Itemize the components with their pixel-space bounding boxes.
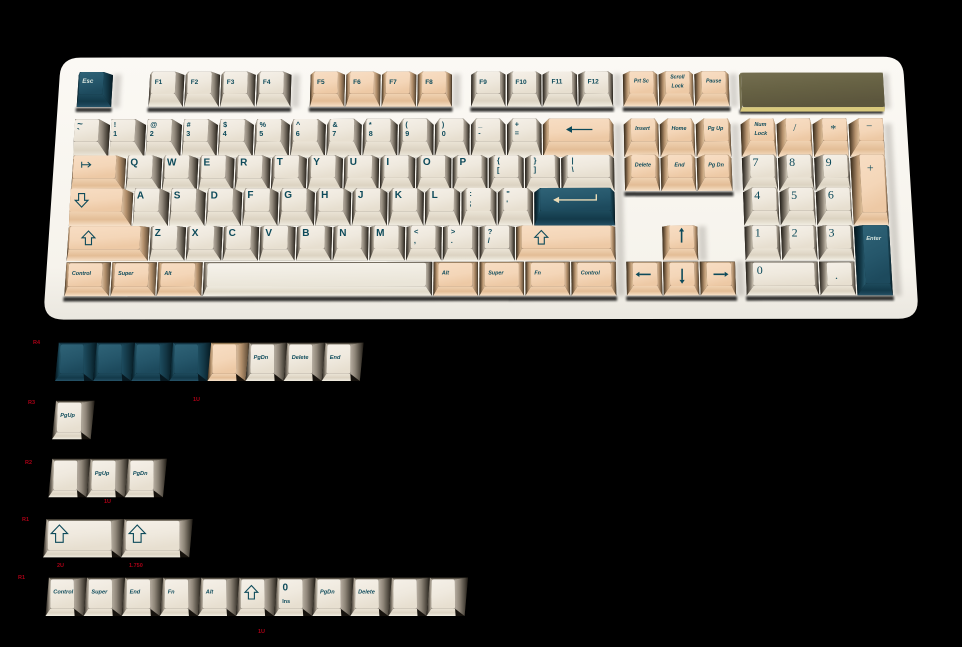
svg-text:M: M	[376, 228, 384, 239]
svg-text:2: 2	[792, 226, 798, 240]
svg-text:Delete: Delete	[358, 590, 375, 596]
svg-text:+: +	[515, 120, 519, 129]
svg-text:I: I	[386, 157, 389, 168]
svg-text:9: 9	[826, 155, 832, 169]
svg-text:1: 1	[113, 129, 117, 138]
svg-text:4: 4	[754, 188, 760, 202]
svg-text:3: 3	[186, 129, 190, 138]
svg-text:R1: R1	[18, 575, 25, 581]
svg-text:PgUp: PgUp	[60, 413, 75, 419]
svg-text:=: =	[515, 129, 519, 138]
svg-text:Control: Control	[72, 271, 92, 277]
svg-text:$: $	[223, 120, 227, 129]
svg-text:Pg Dn: Pg Dn	[708, 162, 724, 168]
svg-text:Lock: Lock	[672, 83, 685, 89]
svg-text:Fn: Fn	[168, 590, 175, 596]
svg-text:*: *	[369, 120, 372, 129]
svg-text:4: 4	[223, 129, 227, 138]
svg-text:Control: Control	[53, 590, 73, 596]
svg-text:U: U	[350, 157, 357, 168]
svg-text:": "	[506, 189, 510, 198]
svg-text:T: T	[277, 157, 283, 168]
svg-text:F10: F10	[515, 79, 527, 86]
svg-text:P: P	[460, 157, 467, 168]
svg-text:Insert: Insert	[635, 126, 650, 132]
svg-text:F: F	[247, 190, 253, 201]
svg-text:;: ;	[469, 198, 472, 207]
svg-text:Alt: Alt	[163, 271, 171, 277]
svg-text:J: J	[358, 190, 364, 201]
svg-text:.: .	[451, 236, 453, 245]
svg-text:3: 3	[829, 225, 835, 239]
svg-text:Prt Sc: Prt Sc	[634, 79, 649, 85]
svg-text:D: D	[211, 190, 218, 201]
svg-text:X: X	[192, 228, 199, 239]
svg-text:PgDn: PgDn	[254, 355, 269, 361]
svg-text:G: G	[284, 190, 292, 201]
svg-text:Super: Super	[91, 590, 108, 596]
svg-text:Esc: Esc	[82, 78, 94, 85]
svg-text:Pause: Pause	[706, 78, 721, 84]
svg-text:F8: F8	[425, 79, 433, 86]
svg-text:F1: F1	[155, 79, 163, 86]
svg-text:%: %	[260, 120, 267, 129]
svg-text:Super: Super	[118, 271, 134, 277]
svg-text:F12: F12	[588, 79, 600, 86]
svg-text::: :	[469, 189, 472, 198]
svg-text:Delete: Delete	[292, 355, 309, 361]
svg-text:!: !	[114, 120, 116, 129]
svg-text:L: L	[432, 190, 438, 201]
svg-text:Alt: Alt	[205, 590, 215, 596]
svg-text:6: 6	[296, 129, 300, 138]
svg-text:F7: F7	[389, 79, 397, 86]
svg-text:O: O	[423, 157, 431, 168]
svg-text:Alt: Alt	[441, 271, 449, 277]
svg-text:0: 0	[757, 263, 763, 277]
svg-text:1.750: 1.750	[129, 563, 143, 569]
svg-text:W: W	[167, 157, 177, 168]
svg-text:2: 2	[150, 129, 154, 138]
svg-text:|: |	[572, 156, 574, 165]
svg-text:Control: Control	[581, 270, 601, 276]
svg-text:}: }	[534, 156, 537, 165]
svg-text:@: @	[150, 120, 157, 129]
svg-text:Z: Z	[155, 228, 161, 239]
svg-text:F2: F2	[191, 79, 199, 86]
svg-text:K: K	[395, 190, 403, 201]
svg-text:*: *	[830, 122, 836, 136]
svg-text:PgDn: PgDn	[320, 590, 335, 596]
svg-text:V: V	[265, 228, 272, 239]
svg-text:7: 7	[753, 155, 759, 169]
svg-text:0: 0	[283, 583, 289, 594]
svg-text:Q: Q	[130, 157, 138, 168]
svg-text:H: H	[321, 190, 328, 201]
svg-text:F9: F9	[479, 79, 487, 86]
svg-text:R4: R4	[33, 340, 41, 346]
svg-text:End: End	[130, 590, 141, 596]
svg-text:Super: Super	[488, 271, 504, 277]
svg-text:N: N	[339, 228, 346, 239]
svg-text:1U: 1U	[258, 629, 265, 635]
svg-text:F11: F11	[552, 79, 563, 86]
svg-text:R2: R2	[25, 460, 32, 466]
svg-text:2U: 2U	[57, 563, 64, 569]
svg-text:Pg Up: Pg Up	[708, 126, 724, 132]
svg-text:1U: 1U	[104, 499, 111, 505]
svg-text:#: #	[187, 120, 191, 129]
svg-text:': '	[506, 198, 508, 207]
svg-text:1U: 1U	[193, 397, 200, 403]
svg-text:?: ?	[488, 227, 493, 236]
svg-text:<: <	[414, 227, 419, 236]
svg-text:0: 0	[442, 129, 446, 138]
svg-text:PgUp: PgUp	[95, 471, 110, 477]
svg-text:9: 9	[405, 129, 409, 138]
svg-text:.: .	[835, 268, 838, 282]
svg-text:F4: F4	[263, 79, 271, 86]
svg-text:5: 5	[259, 129, 263, 138]
svg-text:C: C	[229, 228, 236, 239]
svg-text:{: {	[497, 156, 500, 165]
svg-text:7: 7	[332, 129, 336, 138]
svg-text:1: 1	[755, 226, 761, 240]
svg-text:R3: R3	[28, 400, 35, 406]
svg-text:Fn: Fn	[534, 271, 541, 277]
svg-text:6: 6	[828, 188, 834, 202]
svg-text:Delete: Delete	[635, 162, 651, 168]
svg-text:>: >	[451, 227, 456, 236]
svg-text:S: S	[174, 190, 181, 201]
svg-text:8: 8	[369, 129, 373, 138]
svg-text:End: End	[674, 162, 685, 168]
svg-text:5: 5	[791, 188, 797, 202]
svg-text:E: E	[204, 157, 211, 168]
svg-text:Num: Num	[754, 122, 766, 128]
svg-text:Ins: Ins	[282, 599, 290, 605]
svg-text:Lock: Lock	[755, 131, 769, 137]
svg-text:F3: F3	[227, 79, 235, 86]
svg-text:R1: R1	[22, 517, 29, 523]
svg-text:−: −	[866, 120, 872, 132]
svg-text:PgDn: PgDn	[133, 471, 148, 477]
svg-text:`: `	[77, 127, 80, 138]
svg-text:&: &	[333, 120, 338, 129]
svg-text:,: ,	[414, 236, 416, 245]
svg-text:R: R	[240, 157, 248, 168]
svg-text:A: A	[137, 190, 144, 201]
svg-text:Enter: Enter	[866, 236, 882, 242]
svg-text:Scroll: Scroll	[670, 75, 685, 81]
svg-text:F6: F6	[353, 79, 361, 86]
svg-text:+: +	[867, 161, 874, 175]
svg-text:Home: Home	[672, 126, 687, 132]
svg-text:F5: F5	[317, 79, 325, 86]
svg-text:8: 8	[789, 155, 795, 169]
svg-text:Y: Y	[313, 157, 320, 168]
svg-text:End: End	[330, 355, 341, 361]
svg-text:B: B	[302, 228, 309, 239]
